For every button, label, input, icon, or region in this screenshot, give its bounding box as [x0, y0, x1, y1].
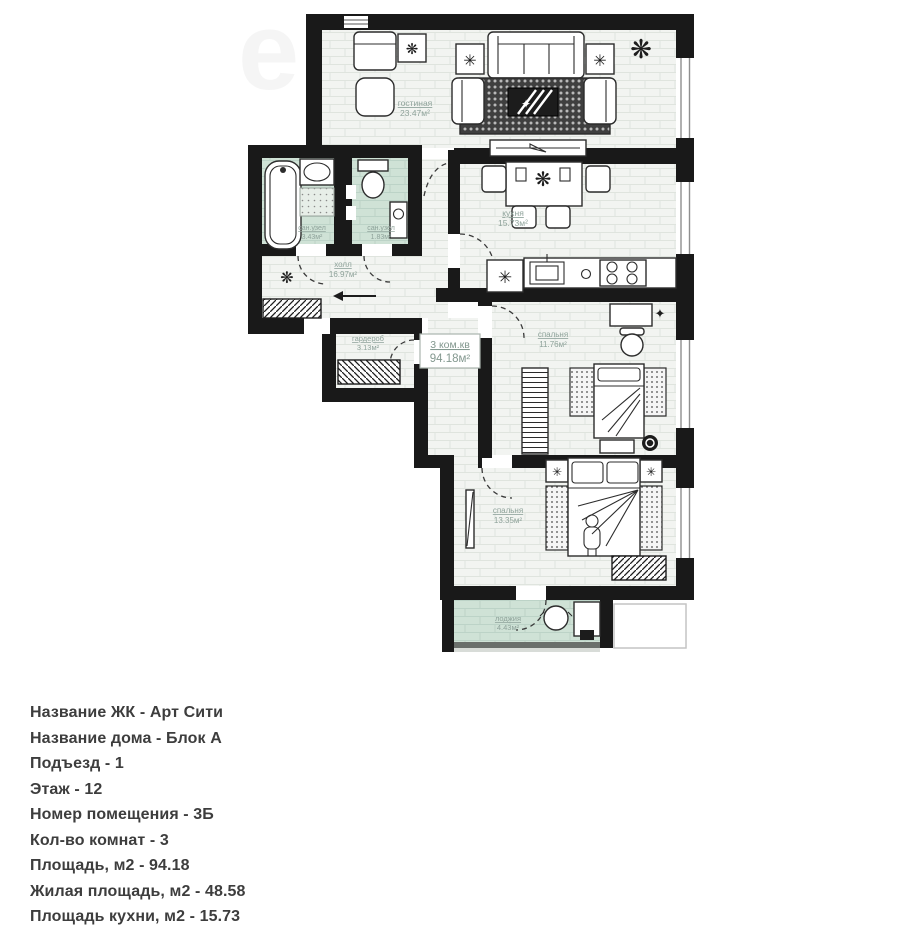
bench-icon	[600, 440, 634, 453]
wardrobe-strip-icon	[522, 368, 548, 454]
closet-icon	[612, 556, 666, 580]
svg-text:16.97м²: 16.97м²	[329, 270, 358, 279]
svg-text:4.43м²: 4.43м²	[497, 623, 520, 632]
label-bedroom2: спальня	[493, 506, 523, 515]
label-bath1: сан.узел	[298, 225, 326, 232]
ottoman-icon	[356, 78, 394, 116]
stove-icon	[600, 260, 646, 286]
svg-text:15.73м²: 15.73м²	[498, 218, 528, 228]
label-bath2: сан.узел	[367, 225, 395, 232]
desk-icon	[610, 304, 652, 326]
label-wardrobe: гардероб	[352, 334, 384, 343]
neighbor-loggia	[614, 604, 686, 648]
svg-text:3.43м²: 3.43м²	[302, 234, 323, 241]
svg-text:13.35м²: 13.35м²	[494, 516, 523, 525]
armchair-icon	[354, 32, 396, 70]
bath2-sink-icon	[390, 202, 407, 238]
tile-patch-icon	[300, 188, 334, 216]
svg-text:✳: ✳	[463, 51, 476, 70]
armchair-left-icon	[452, 78, 484, 124]
toilet-tank-icon	[358, 160, 388, 171]
bed-rail-icon	[640, 486, 662, 550]
sofa-icon	[488, 32, 584, 78]
detail-line-building: Название дома - Блок А	[30, 726, 246, 752]
svg-text:✦: ✦	[521, 97, 531, 111]
svg-text:11.76м²: 11.76м²	[539, 340, 567, 349]
flower-icon: ✳	[552, 465, 562, 479]
svg-text:✳: ✳	[593, 51, 606, 70]
toilet-icon	[362, 172, 384, 198]
svg-text:1.83м²: 1.83м²	[371, 234, 392, 241]
listing-details: Название ЖК - Арт Сити Название дома - Б…	[30, 700, 246, 930]
unit-label-box: 3 ком.кв 94.18м²	[420, 334, 480, 368]
armchair-right-icon	[584, 78, 616, 124]
wardrobe-rack-icon	[338, 360, 400, 384]
plant-icon: ❋	[406, 40, 419, 58]
dark-item-icon	[580, 630, 594, 640]
speaker-icon	[642, 435, 658, 451]
detail-line-room-count: Кол-во комнат - 3	[30, 828, 246, 854]
loggia-glazing-icon	[454, 642, 600, 648]
label-kitchen: кухня	[502, 208, 524, 218]
chair-icon	[586, 166, 610, 192]
detail-line-living-area: Жилая площадь, м2 - 48.58	[30, 879, 246, 905]
table-plant-icon: ❋	[535, 167, 552, 191]
flower-icon: ✳	[646, 465, 656, 479]
unit-area: 94.18м²	[430, 353, 471, 365]
detail-line-entrance: Подъезд - 1	[30, 751, 246, 777]
detail-line-kitchen-area: Площадь кухни, м2 - 15.73	[30, 904, 246, 930]
snowflake-icon: ✳	[498, 268, 512, 288]
nightstand-icon	[644, 368, 666, 416]
detail-line-floor: Этаж - 12	[30, 777, 246, 803]
shaft-icon	[346, 185, 356, 199]
svg-text:23.47м²: 23.47м²	[400, 108, 430, 118]
label-hall: холл	[334, 260, 352, 269]
chair-icon	[482, 166, 506, 192]
chair-icon	[546, 206, 570, 228]
coat-closet-icon	[263, 299, 321, 318]
detail-line-complex: Название ЖК - Арт Сити	[30, 700, 246, 726]
bed-rail-icon	[546, 486, 568, 550]
svg-text:3.13м²: 3.13м²	[357, 343, 380, 352]
office-chair-icon	[621, 334, 643, 356]
nightstand-icon	[570, 368, 594, 416]
bed-icon	[594, 364, 644, 438]
label-loggia: лоджия	[495, 614, 521, 623]
corner-plant-icon: ❋	[630, 35, 652, 65]
detail-line-unit-number: Номер помещения - 3Б	[30, 802, 246, 828]
unit-type: 3 ком.кв	[430, 339, 470, 351]
label-living: гостиная	[398, 98, 433, 108]
office-chair-icon	[544, 606, 568, 630]
hall-passage	[422, 159, 448, 256]
detail-line-total-area: Площадь, м2 - 94.18	[30, 853, 246, 879]
double-bed-icon	[568, 458, 640, 556]
decor-icon: ✦	[655, 307, 666, 322]
label-bedroom1: спальня	[538, 330, 568, 339]
hall-plant-icon: ❋	[280, 268, 293, 287]
